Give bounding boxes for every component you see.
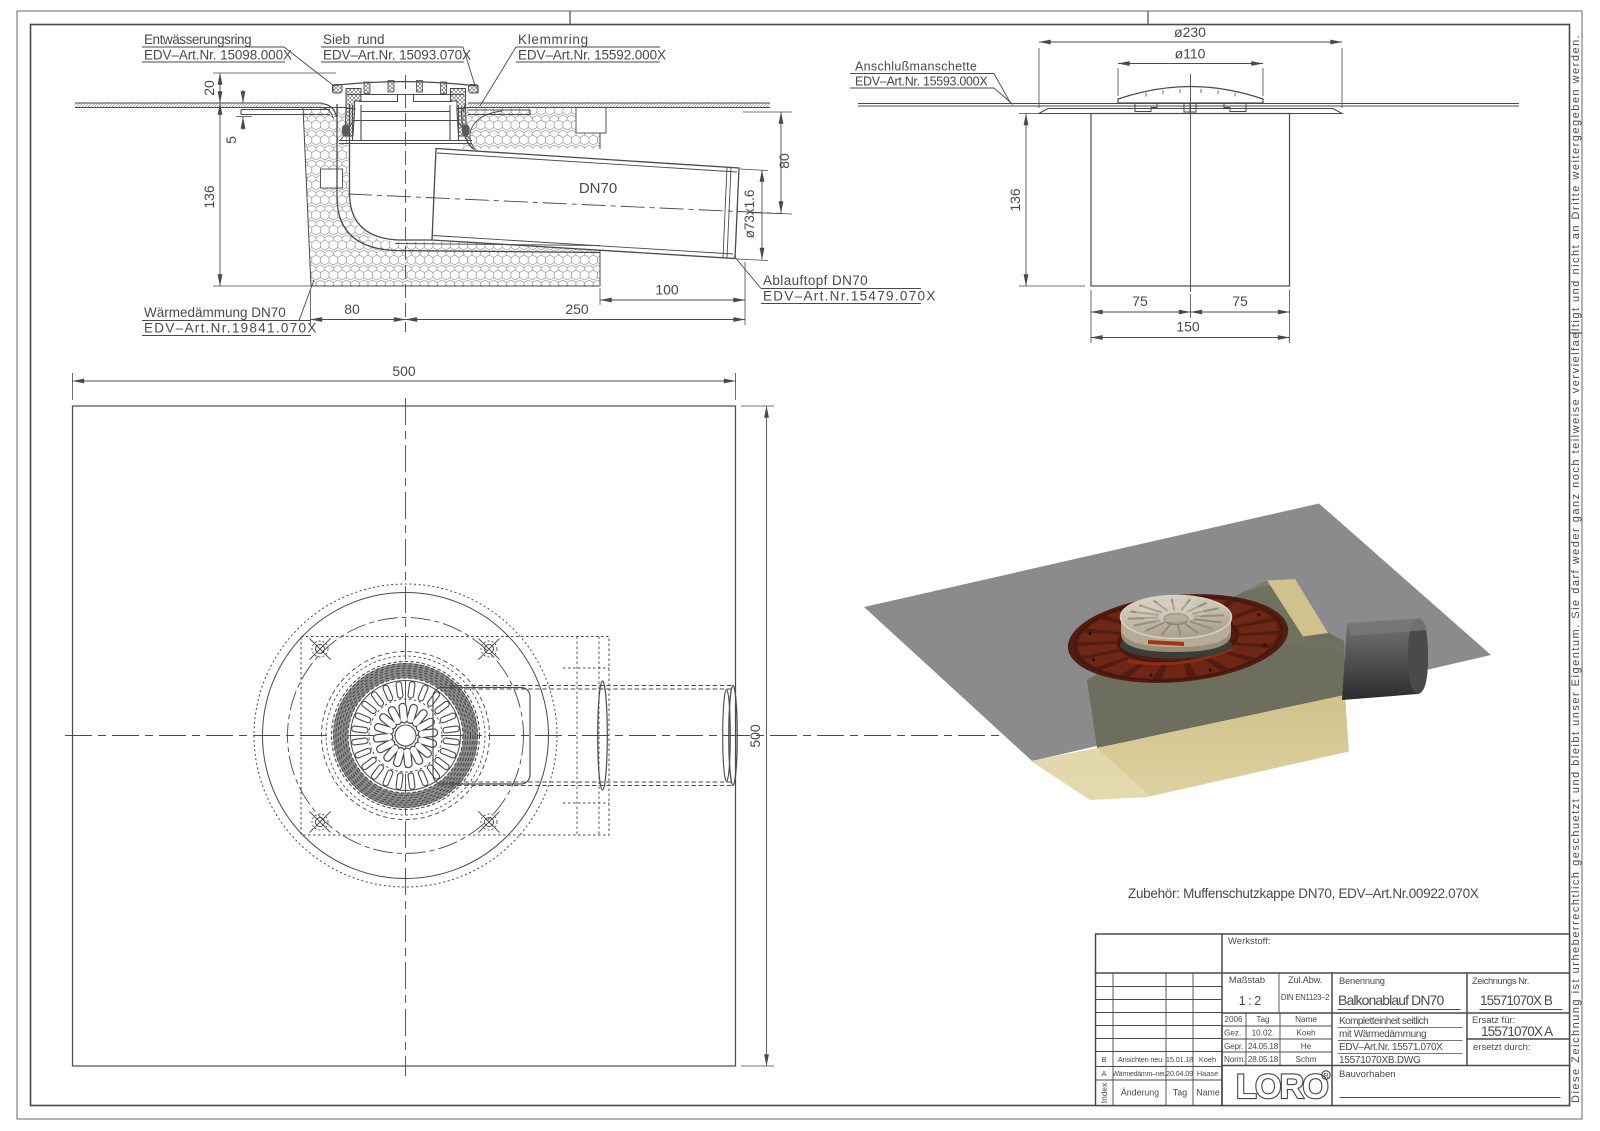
- svg-text:10.02.: 10.02.: [1252, 1029, 1275, 1038]
- svg-text:EDV–Art.Nr.19841.070X: EDV–Art.Nr.19841.070X: [144, 321, 318, 336]
- svg-text:EDV–Art.Nr. 15593.000X: EDV–Art.Nr. 15593.000X: [855, 75, 988, 89]
- svg-text:15571070X A: 15571070X A: [1481, 1024, 1553, 1039]
- svg-text:20.04.09: 20.04.09: [1166, 1069, 1193, 1078]
- svg-text:2006: 2006: [1224, 1015, 1243, 1024]
- svg-text:Maßstab: Maßstab: [1229, 975, 1265, 985]
- svg-text:Tag: Tag: [1256, 1015, 1270, 1024]
- svg-text:R: R: [1324, 1073, 1329, 1080]
- svg-text:500: 500: [392, 363, 416, 379]
- svg-text:Name: Name: [1196, 1088, 1220, 1098]
- svg-text:Schm: Schm: [1296, 1055, 1317, 1064]
- svg-text:24.05.18: 24.05.18: [1248, 1042, 1279, 1051]
- svg-text:LORO: LORO: [1236, 1068, 1328, 1106]
- svg-text:Benennung: Benennung: [1339, 976, 1385, 986]
- svg-text:15571070X B: 15571070X B: [1480, 993, 1553, 1008]
- svg-text:20: 20: [201, 80, 217, 96]
- svg-text:Haase: Haase: [1197, 1069, 1218, 1078]
- svg-text:100: 100: [655, 282, 679, 298]
- svg-text:Balkonablauf DN70: Balkonablauf DN70: [1338, 992, 1444, 1008]
- svg-text:EDV–Art.Nr.15479.070X: EDV–Art.Nr.15479.070X: [763, 289, 937, 304]
- svg-text:ø110: ø110: [1175, 46, 1206, 62]
- svg-text:75: 75: [1232, 293, 1248, 309]
- svg-text:75: 75: [1132, 293, 1148, 309]
- svg-text:Norm.: Norm.: [1224, 1055, 1245, 1064]
- svg-text:Klemmring: Klemmring: [518, 32, 589, 47]
- svg-text:Gez.: Gez.: [1224, 1029, 1241, 1038]
- svg-text:136: 136: [201, 185, 217, 209]
- svg-text:Ansichten neu: Ansichten neu: [1118, 1055, 1162, 1064]
- svg-text:150: 150: [1176, 319, 1200, 335]
- svg-text:ø230: ø230: [1174, 24, 1206, 40]
- svg-text:Zeichnungs Nr.: Zeichnungs Nr.: [1472, 976, 1529, 986]
- svg-text:Name: Name: [1295, 1015, 1317, 1024]
- svg-text:80: 80: [344, 301, 360, 317]
- svg-text:Sieb rund: Sieb rund: [323, 32, 385, 47]
- svg-text:Diese Zeichnung ist urheberrec: Diese Zeichnung ist urheberrechtlich ges…: [1570, 34, 1582, 1103]
- svg-text:1 : 2: 1 : 2: [1239, 994, 1261, 1008]
- svg-text:He: He: [1301, 1042, 1312, 1051]
- svg-text:28.05.18: 28.05.18: [1248, 1055, 1279, 1064]
- svg-text:B: B: [1102, 1055, 1107, 1064]
- svg-text:DIN EN1123–2: DIN EN1123–2: [1281, 993, 1329, 1002]
- svg-text:EDV–Art.Nr. 15571.070X: EDV–Art.Nr. 15571.070X: [1339, 1042, 1443, 1053]
- svg-text:ø73x1.6: ø73x1.6: [742, 190, 757, 239]
- svg-text:Wärmedämmung DN70: Wärmedämmung DN70: [144, 305, 286, 320]
- svg-text:Kompletteinheit seitlich: Kompletteinheit seitlich: [1339, 1016, 1428, 1027]
- svg-text:Änderung: Änderung: [1121, 1088, 1159, 1098]
- svg-text:Anschlußmanschette: Anschlußmanschette: [855, 60, 977, 74]
- svg-text:Tag: Tag: [1173, 1088, 1187, 1098]
- svg-text:5: 5: [223, 136, 239, 144]
- svg-text:DN70: DN70: [579, 180, 617, 197]
- svg-text:Zubehör: Muffenschutzkappe DN: Zubehör: Muffenschutzkappe DN70, EDV–Art…: [1128, 886, 1479, 901]
- svg-text:80: 80: [776, 153, 792, 169]
- svg-text:Werkstoff:: Werkstoff:: [1228, 936, 1270, 947]
- svg-text:15.01.18: 15.01.18: [1166, 1055, 1193, 1064]
- svg-text:Bauvorhaben: Bauvorhaben: [1339, 1069, 1396, 1080]
- svg-text:15571070XB.DWG: 15571070XB.DWG: [1339, 1055, 1421, 1066]
- svg-text:Ablauftopf DN70: Ablauftopf DN70: [763, 273, 868, 288]
- svg-text:ersetzt durch:: ersetzt durch:: [1473, 1042, 1531, 1053]
- svg-text:mit Wärmedämmung: mit Wärmedämmung: [1339, 1029, 1426, 1040]
- svg-text:Zul.Abw.: Zul.Abw.: [1288, 975, 1322, 985]
- svg-text:Gepr.: Gepr.: [1224, 1042, 1243, 1051]
- svg-text:A: A: [1102, 1069, 1107, 1078]
- svg-text:Koeh: Koeh: [1296, 1029, 1316, 1038]
- svg-text:Wärmedämm–neu: Wärmedämm–neu: [1112, 1071, 1167, 1078]
- svg-text:EDV–Art.Nr. 15093.070X: EDV–Art.Nr. 15093.070X: [323, 48, 471, 63]
- svg-text:EDV–Art.Nr. 15098.000X: EDV–Art.Nr. 15098.000X: [144, 48, 292, 63]
- svg-text:Koeh: Koeh: [1199, 1055, 1216, 1064]
- svg-text:Entwässerungsring: Entwässerungsring: [144, 32, 251, 47]
- svg-text:EDV–Art.Nr. 15592.000X: EDV–Art.Nr. 15592.000X: [518, 48, 666, 63]
- svg-text:Index: Index: [1099, 1082, 1109, 1103]
- svg-text:250: 250: [565, 301, 589, 317]
- svg-text:136: 136: [1007, 188, 1023, 212]
